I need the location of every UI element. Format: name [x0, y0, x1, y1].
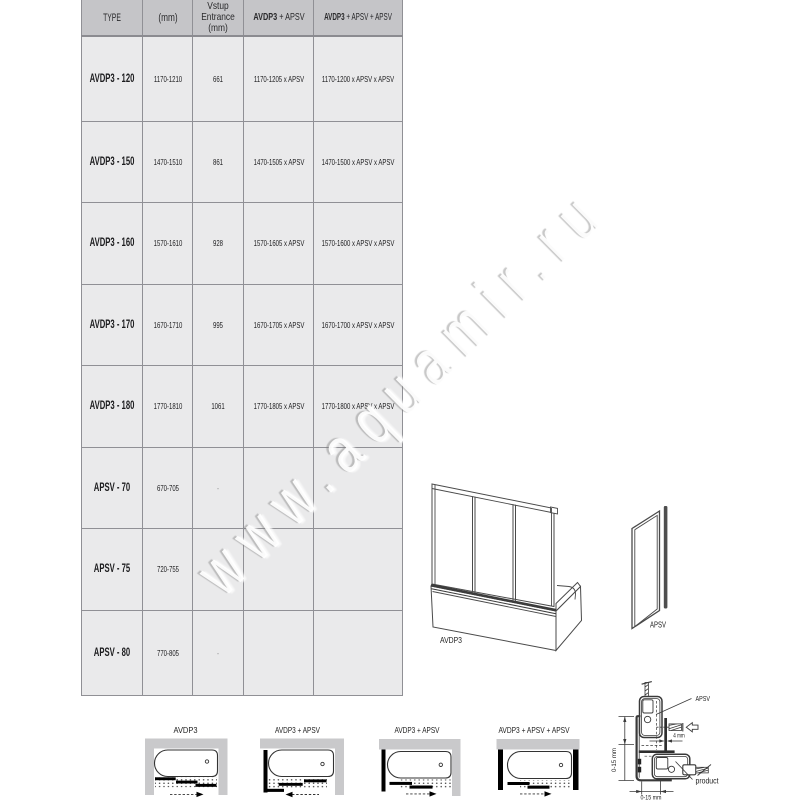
svg-text:AVDP3: AVDP3: [440, 635, 462, 645]
svg-text:AVDP3: AVDP3: [174, 725, 198, 735]
svg-text:AVDP3 + APSV: AVDP3 + APSV: [275, 725, 320, 735]
svg-text:AVDP3 + APSV + APSV: AVDP3 + APSV + APSV: [499, 725, 570, 735]
svg-text:0-15 mm: 0-15 mm: [611, 748, 618, 772]
svg-text:0-15 mm: 0-15 mm: [641, 795, 662, 800]
svg-text:AVDP3 + APSV: AVDP3 + APSV: [395, 725, 440, 735]
svg-text:APSV: APSV: [650, 621, 666, 630]
svg-text:product: product: [696, 776, 720, 786]
svg-text:4 mm: 4 mm: [673, 733, 685, 740]
svg-text:APSV: APSV: [696, 694, 711, 703]
